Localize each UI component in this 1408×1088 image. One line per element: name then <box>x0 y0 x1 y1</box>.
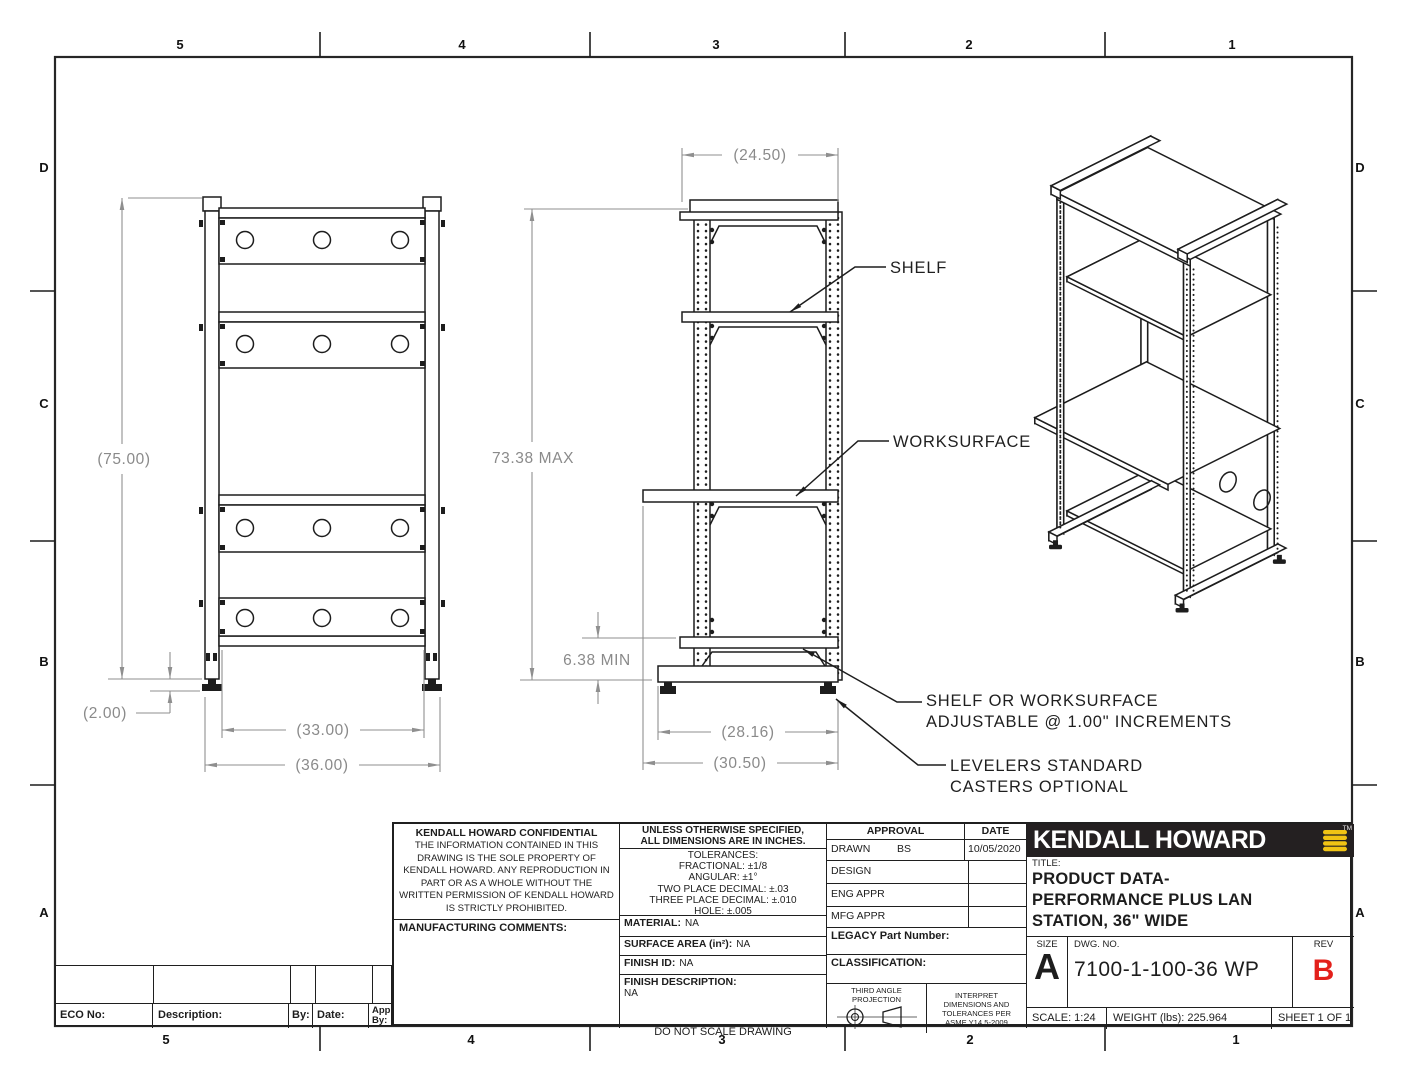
logo-text: KENDALL HOWARD <box>1033 826 1322 855</box>
title-block: KENDALL HOWARD CONFIDENTIAL THE INFORMAT… <box>392 822 1352 1026</box>
projection-label-line2: PROJECTION <box>827 995 926 1004</box>
eco-date-label: Date: <box>313 1004 369 1028</box>
annotation-text: SHELF OR WORKSURFACE <box>926 692 1158 710</box>
zone-row-label: B <box>1347 654 1373 670</box>
annotation-text: (33.00) <box>296 722 349 739</box>
tolerance-line: FRACTIONAL: ±1/8 <box>620 861 826 872</box>
zone-row-label: D <box>31 160 57 176</box>
size-value: A <box>1027 950 1067 984</box>
dwg-no-label: DWG. NO. <box>1074 939 1286 950</box>
scale-value: SCALE: 1:24 <box>1027 1008 1107 1029</box>
brand-column: KENDALL HOWARD TM TITLE: PRODUCT DATA- P… <box>1027 824 1354 1028</box>
eco-by-label: By: <box>289 1004 313 1028</box>
finish-id-label: FINISH ID: <box>624 957 675 969</box>
zone-row-label: D <box>1347 160 1373 176</box>
logo-stack-icon <box>1322 829 1348 853</box>
tolerance-line: THREE PLACE DECIMAL: ±.010 <box>620 895 826 906</box>
rev-value: B <box>1293 956 1354 986</box>
eco-description-label: Description: <box>153 1004 289 1028</box>
third-angle-projection-icon <box>835 1004 919 1030</box>
approval-row-label: DRAWN <box>827 840 897 860</box>
eco-cell-empty <box>154 966 291 1003</box>
approval-row-label: ENG APPR <box>827 884 969 906</box>
confidential-note: KENDALL HOWARD CONFIDENTIAL THE INFORMAT… <box>394 824 620 920</box>
annotation-text: (2.00) <box>83 705 127 722</box>
approval-row-date <box>969 861 1026 883</box>
eco-app-by-line2: By: <box>372 1016 391 1026</box>
approval-column: APPROVAL DATE DRAWN BS 10/05/2020 DESIGN… <box>827 824 1027 1028</box>
finish-id-value: NA <box>679 958 693 969</box>
rev-cell: REV B <box>1293 937 1354 1007</box>
finish-desc-label: FINISH DESCRIPTION: <box>624 976 822 988</box>
annotation-text: WORKSURFACE <box>893 433 1031 451</box>
zone-col-label: 2 <box>956 37 982 53</box>
drawing-title-line: PERFORMANCE PLUS LAN <box>1032 890 1349 911</box>
trademark-symbol: TM <box>1343 825 1352 832</box>
annotation-text: 73.38 MAX <box>492 450 574 467</box>
zone-col-label: 4 <box>458 1032 484 1048</box>
rev-label: REV <box>1293 939 1354 950</box>
annotation-text: (30.50) <box>713 755 766 772</box>
annotation-text: 6.38 MIN <box>563 652 631 669</box>
eco-app-by-label: App By: <box>369 1004 391 1028</box>
approval-row-by: BS <box>897 840 911 860</box>
side-view <box>643 200 842 694</box>
annotation-text: LEVELERS STANDARD <box>950 757 1143 775</box>
date-header: DATE <box>965 824 1026 839</box>
do-not-scale-note: DO NOT SCALE DRAWING <box>620 1025 826 1039</box>
manufacturing-comments-label: MANUFACTURING COMMENTS: <box>394 920 619 936</box>
eco-cell-empty <box>56 966 154 1003</box>
material-label: MATERIAL: <box>624 917 681 929</box>
units-note-line2: ALL DIMENSIONS ARE IN INCHES. <box>620 836 826 847</box>
logo-band: KENDALL HOWARD TM <box>1027 824 1354 857</box>
surface-area-label: SURFACE AREA (in²): <box>624 938 732 950</box>
zone-row-label: C <box>1347 396 1373 412</box>
spec-column: UNLESS OTHERWISE SPECIFIED, ALL DIMENSIO… <box>620 824 827 1028</box>
zone-col-label: 3 <box>703 37 729 53</box>
tolerances-title: TOLERANCES: <box>620 850 826 861</box>
classification-label: CLASSIFICATION: <box>827 955 1026 984</box>
approval-row-date <box>969 907 1026 927</box>
eco-cell-empty <box>291 966 316 1003</box>
iso-view <box>1035 136 1287 612</box>
finish-desc-value: NA <box>624 988 822 999</box>
zone-row-label: A <box>31 905 57 921</box>
dwg-no-value: 7100-1-100-36 WP <box>1074 958 1286 982</box>
front-view <box>199 197 445 691</box>
annotation-text: SHELF <box>890 259 947 277</box>
confidential-heading: KENDALL HOWARD CONFIDENTIAL <box>394 827 619 839</box>
drawing-sheet: (75.00)(2.00)(33.00)(36.00)(24.50)73.38 … <box>0 0 1408 1088</box>
zone-col-label: 2 <box>957 1032 983 1048</box>
annotation-text: (24.50) <box>733 147 786 164</box>
zone-col-label: 5 <box>153 1032 179 1048</box>
zone-col-label: 4 <box>449 37 475 53</box>
confidential-body: THE INFORMATION CONTAINED IN THIS DRAWIN… <box>394 839 619 917</box>
interpret-note: INTERPRET DIMENSIONS AND TOLERANCES PER … <box>927 991 1026 1027</box>
annotation-text: ADJUSTABLE @ 1.00" INCREMENTS <box>926 713 1232 731</box>
annotation-text: (28.16) <box>721 724 774 741</box>
surface-area-value: NA <box>736 939 750 950</box>
dwg-no-cell: DWG. NO. 7100-1-100-36 WP <box>1068 937 1293 1007</box>
approval-row-date <box>969 884 1026 906</box>
drawing-title-line: STATION, 36" WIDE <box>1032 911 1349 932</box>
material-value: NA <box>685 918 699 929</box>
third-angle-projection-cell: THIRD ANGLE PROJECTION <box>827 984 927 1033</box>
zone-row-label: C <box>31 396 57 412</box>
eco-cell-empty <box>373 966 391 1003</box>
eco-no-label: ECO No: <box>56 1004 153 1028</box>
annotation-text: (75.00) <box>97 451 150 468</box>
approval-header: APPROVAL <box>827 824 965 839</box>
tolerance-line: TWO PLACE DECIMAL: ±.03 <box>620 884 826 895</box>
zone-col-label: 5 <box>167 37 193 53</box>
title-label: TITLE: <box>1032 858 1349 869</box>
sheet-value: SHEET 1 OF 1 <box>1272 1008 1354 1029</box>
legacy-part-number-label: LEGACY Part Number: <box>827 928 1026 955</box>
approval-row-label: DESIGN <box>827 861 969 883</box>
units-note-line1: UNLESS OTHERWISE SPECIFIED, <box>620 825 826 836</box>
zone-row-label: B <box>31 654 57 670</box>
approval-row-date: 10/05/2020 <box>965 840 1026 860</box>
front-dimensions: (75.00)(2.00)(33.00)(36.00) <box>83 198 440 774</box>
eco-revision-table: ECO No: Description: By: Date: App By: <box>55 965 392 1026</box>
eco-cell-empty <box>316 966 373 1003</box>
tolerance-line: ANGULAR: ±1° <box>620 872 826 883</box>
approval-row-label: MFG APPR <box>827 907 969 927</box>
zone-col-label: 1 <box>1219 37 1245 53</box>
annotation-text: CASTERS OPTIONAL <box>950 778 1129 796</box>
size-cell: SIZE A <box>1027 937 1068 1007</box>
projection-label-line1: THIRD ANGLE <box>827 986 926 995</box>
weight-value: WEIGHT (lbs): 225.964 <box>1107 1008 1272 1029</box>
annotation-text: (36.00) <box>295 757 348 774</box>
zone-col-label: 1 <box>1223 1032 1249 1048</box>
manufacturing-comments: MANUFACTURING COMMENTS: <box>394 920 620 1028</box>
drawing-title-line: PRODUCT DATA- <box>1032 869 1349 890</box>
